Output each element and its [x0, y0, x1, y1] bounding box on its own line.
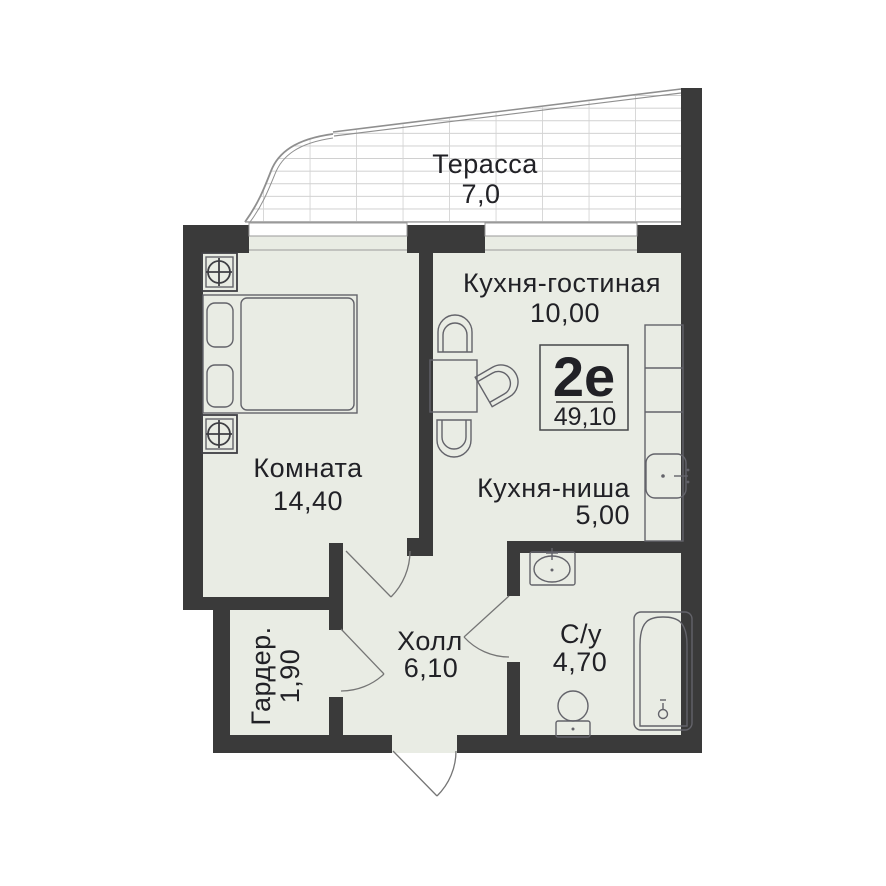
wall-partition-bedroom-kitchen	[419, 253, 433, 543]
unit-total-area: 49,10	[554, 403, 617, 431]
wall-wardrobe-right-upper	[329, 543, 343, 630]
area-kitchen-living: 10,00	[530, 298, 600, 328]
area-bathroom: 4,70	[553, 647, 608, 677]
window-kitchen	[485, 223, 637, 236]
label-wardrobe: Гардер.	[246, 626, 276, 725]
wall-partition-foot	[407, 538, 433, 556]
label-bathroom: С/у	[560, 619, 602, 649]
area-hall: 6,10	[404, 653, 459, 683]
floor-plan-page: Терасса 7,0	[0, 0, 886, 886]
exterior-notch	[183, 610, 213, 753]
unit-type: 2е	[553, 345, 615, 408]
window-bedroom	[249, 223, 407, 236]
label-kitchen-niche: Кухня-ниша	[477, 473, 630, 503]
wall-bedroom-bottom	[183, 597, 343, 610]
unit-badge: 2е 49,10	[540, 345, 628, 431]
area-bedroom: 14,40	[273, 486, 343, 516]
label-bedroom: Комната	[253, 453, 363, 483]
terrace-label: Терасса	[432, 149, 538, 179]
label-kitchen-living: Кухня-гостиная	[463, 268, 661, 298]
wall-top-left-block	[183, 225, 249, 253]
wall-bathroom-top	[507, 541, 681, 553]
terrace-area: 7,0	[461, 179, 500, 209]
wall-outer-left	[183, 225, 203, 610]
door-entry	[393, 751, 456, 796]
terrace: Терасса 7,0	[245, 89, 681, 222]
wall-wardrobe-left	[213, 597, 230, 753]
wall-top-pier	[407, 225, 485, 253]
wall-bathroom-left-upper	[507, 553, 520, 596]
label-hall: Холл	[397, 626, 463, 656]
area-kitchen-niche: 5,00	[575, 500, 630, 530]
wall-bathroom-left-lower	[507, 662, 520, 735]
wall-bottom-left	[213, 735, 392, 753]
wall-terrace-right	[681, 88, 702, 225]
area-wardrobe: 1,90	[275, 649, 305, 704]
floor-plan: Терасса 7,0	[0, 0, 886, 886]
